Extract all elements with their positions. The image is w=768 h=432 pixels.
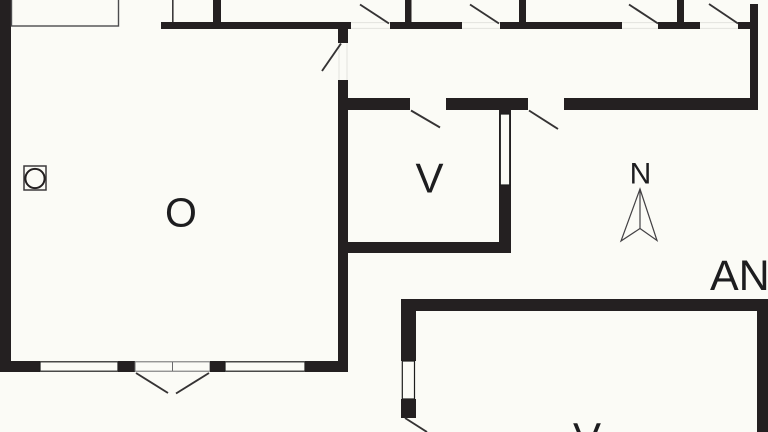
- svg-text:V: V: [415, 155, 443, 202]
- svg-text:ANNEKS: ANNEKS: [710, 252, 768, 300]
- svg-text:V: V: [573, 414, 601, 432]
- svg-text:O: O: [165, 190, 197, 236]
- svg-text:N: N: [630, 158, 652, 191]
